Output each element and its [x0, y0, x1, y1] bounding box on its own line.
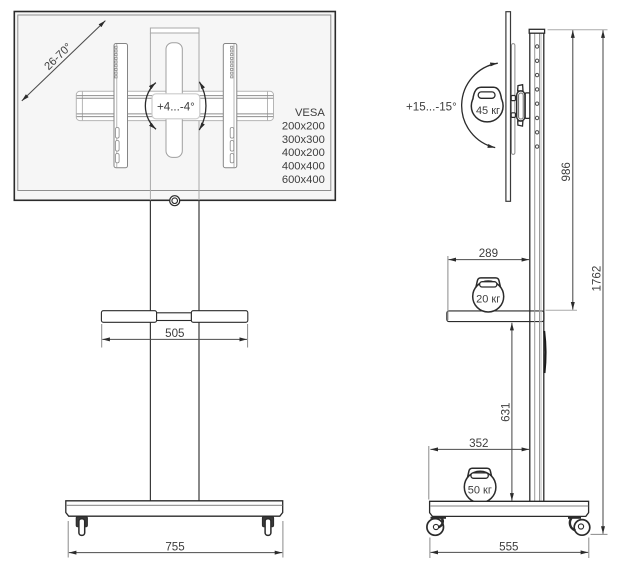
svg-text:555: 555 [499, 540, 518, 553]
svg-text:20 кг: 20 кг [476, 294, 500, 306]
svg-text:200x200: 200x200 [282, 121, 325, 133]
svg-text:+4...-4°: +4...-4° [157, 100, 195, 113]
svg-text:289: 289 [479, 247, 498, 260]
svg-text:45 кг: 45 кг [476, 105, 500, 117]
svg-text:50 кг: 50 кг [468, 484, 492, 496]
svg-text:631: 631 [499, 403, 512, 422]
svg-text:600x400: 600x400 [282, 174, 325, 186]
svg-text:352: 352 [469, 437, 488, 450]
svg-text:400x200: 400x200 [282, 147, 325, 159]
svg-text:1762: 1762 [590, 266, 603, 292]
svg-text:400x400: 400x400 [282, 161, 325, 173]
svg-text:986: 986 [560, 162, 573, 181]
svg-text:505: 505 [165, 327, 184, 340]
svg-text:VESA: VESA [295, 107, 325, 119]
svg-text:300x300: 300x300 [282, 134, 325, 146]
svg-text:755: 755 [165, 541, 184, 554]
svg-text:+15...-15°: +15...-15° [406, 100, 457, 113]
